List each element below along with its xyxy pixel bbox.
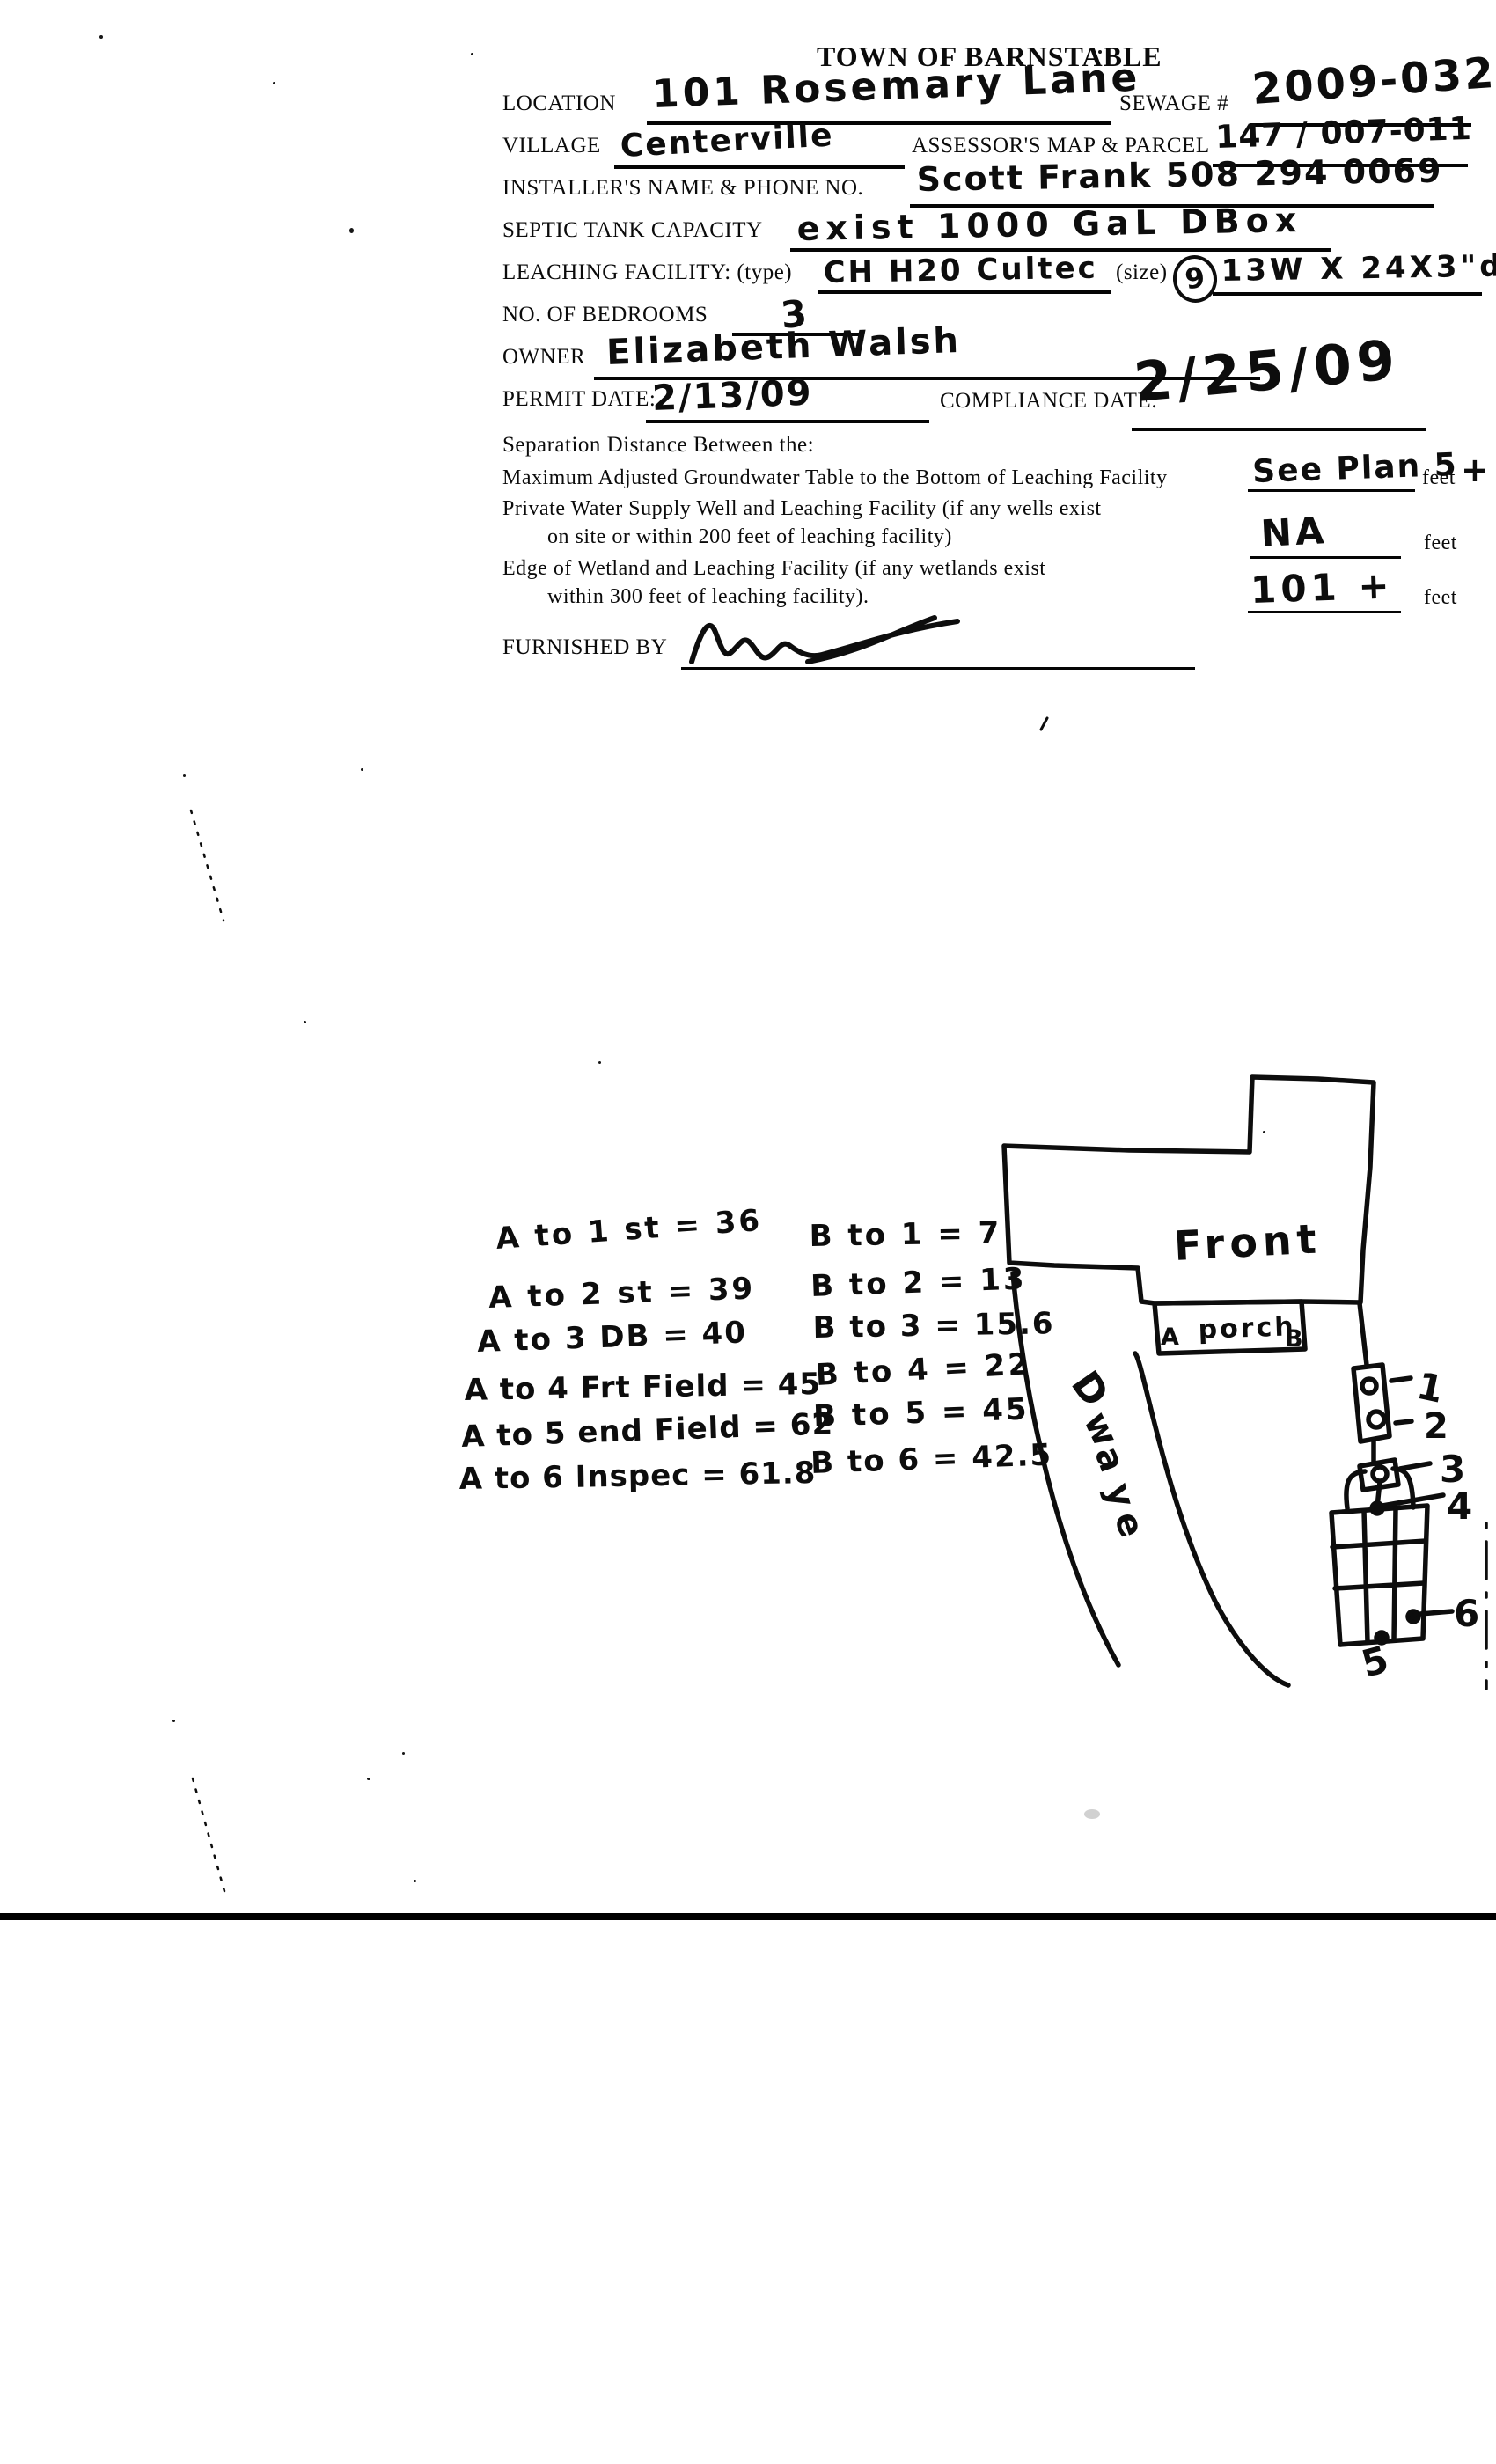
scan-smudge	[1084, 1809, 1100, 1819]
porch-point-b-label: B	[1285, 1325, 1303, 1353]
furnished-by-signature	[692, 618, 957, 662]
scan-speck	[361, 768, 363, 771]
stray-slash-mark	[1041, 718, 1047, 730]
porch-point-a-label: A	[1161, 1324, 1179, 1351]
scratch-mark-lower	[193, 1778, 224, 1891]
scan-speck	[1263, 1131, 1265, 1133]
point-5-label: 5	[1357, 1638, 1393, 1686]
driveway-right-edge	[1135, 1353, 1288, 1685]
scan-speck	[1098, 50, 1102, 54]
tank-cover-2-circle	[1368, 1412, 1384, 1427]
point-2-label: 2	[1424, 1406, 1448, 1447]
point-6-label: 6	[1454, 1592, 1479, 1635]
site-sketch: Front porch A B D w a y e 1 2 3 4 5 6	[0, 0, 1496, 2464]
scan-speck	[183, 774, 186, 777]
scan-speck	[349, 228, 354, 233]
scan-speck	[367, 1778, 370, 1780]
scan-speck	[99, 35, 103, 39]
tank-cover-1-circle	[1362, 1379, 1376, 1393]
point-6-dot	[1408, 1611, 1419, 1622]
scan-speck	[598, 1061, 601, 1064]
point-4-label: 4	[1447, 1485, 1472, 1528]
scratch-mark-upper	[191, 810, 224, 920]
dbox-cover-circle	[1373, 1467, 1387, 1481]
house-front-label: Front	[1173, 1214, 1323, 1270]
scan-speck	[304, 1021, 306, 1023]
scan-speck	[273, 82, 275, 84]
scan-speck	[471, 53, 473, 55]
septic-tank-outline	[1353, 1365, 1390, 1441]
scan-speck	[414, 1880, 416, 1882]
scan-speck	[402, 1752, 405, 1755]
driveway-letter-y: y	[1097, 1479, 1142, 1512]
point-1-tick	[1391, 1378, 1411, 1381]
point-6-tick	[1420, 1611, 1452, 1614]
house-to-tank-line	[1360, 1303, 1367, 1365]
house-outline	[1004, 1077, 1374, 1303]
scan-speck	[172, 1720, 175, 1722]
driveway-letter-e: e	[1106, 1507, 1153, 1543]
scan-edge-bar	[0, 1913, 1496, 1920]
scanned-septic-form-page: TOWN OF BARNSTABLE LOCATION 101 Rosemary…	[0, 0, 1496, 2464]
point-2-tick	[1396, 1421, 1412, 1423]
point-3-tick	[1400, 1463, 1430, 1469]
porch-label: porch	[1198, 1311, 1296, 1346]
point-1-label: 1	[1413, 1364, 1448, 1412]
scan-speck	[1355, 88, 1358, 91]
